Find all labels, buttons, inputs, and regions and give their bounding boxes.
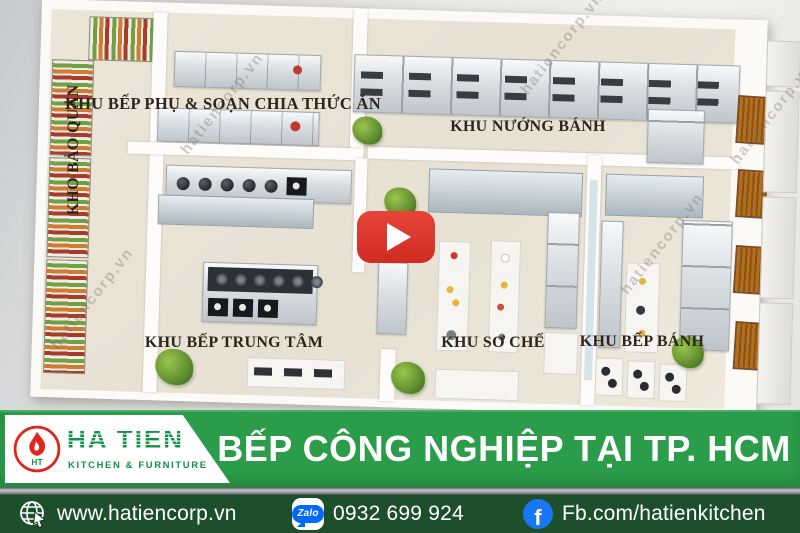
corner-oven-unit (646, 109, 705, 165)
video-thumbnail: hatiencorp.vn hatiencorp.vn hatiencorp.v… (0, 0, 800, 533)
range (233, 299, 254, 318)
phone-text: 0932 699 924 (333, 502, 464, 526)
exhaust-hood (157, 194, 314, 229)
play-icon (387, 223, 411, 251)
facebook-text: Fb.com/hatienkitchen (562, 502, 766, 526)
logo-tagline: KITCHEN & FURNITURE (68, 460, 208, 471)
banner-title: BẾP CÔNG NGHIỆP TẠI TP. HCM (232, 410, 776, 487)
stool (633, 370, 642, 379)
play-button[interactable] (357, 211, 435, 263)
oven-range-row (208, 298, 279, 318)
stool (665, 372, 674, 381)
food-item (636, 306, 645, 315)
counter-item (293, 65, 302, 74)
small-table (658, 363, 687, 402)
steel-cabinet (376, 262, 408, 335)
counter (543, 332, 578, 375)
metal-separator (0, 487, 800, 495)
appliance-row (247, 357, 346, 390)
food-item (497, 303, 504, 310)
food-item (452, 299, 459, 306)
food-item (447, 286, 454, 293)
label-pastry-kitchen: KHU BẾP BÁNH (580, 333, 705, 351)
website-link[interactable]: www.hatiencorp.vn (18, 495, 237, 533)
burner (292, 275, 304, 287)
annex-room (760, 196, 797, 299)
plate (500, 254, 509, 263)
label-central-kitchen: KHU BẾP TRUNG TÂM (145, 334, 323, 352)
steel-cabinet-column (545, 212, 580, 329)
cooktop (207, 267, 313, 294)
burner (216, 273, 228, 285)
food-item (451, 252, 458, 259)
food-item (501, 282, 508, 289)
appliance-vents (254, 367, 338, 377)
burner (220, 178, 233, 191)
floor-plan-area: hatiencorp.vn hatiencorp.vn hatiencorp.v… (0, 0, 800, 410)
stool (608, 379, 617, 388)
counter (434, 369, 519, 401)
burner (235, 274, 247, 286)
small-table (626, 360, 655, 399)
label-baking-area: KHU NƯỚNG BÁNH (450, 118, 606, 136)
island-cooking-block (202, 262, 319, 325)
meat-slicer (290, 121, 300, 131)
burner (273, 275, 285, 287)
stool (601, 367, 610, 376)
burner (264, 179, 277, 192)
logo-monogram: HT (31, 457, 42, 467)
zalo-icon: Zalo (292, 498, 324, 530)
facebook-icon-letter: f (534, 507, 542, 529)
label-preprocessing-area: KHU SƠ CHẾ (441, 334, 544, 352)
contact-bar: www.hatiencorp.vn Zalo 0932 699 924 f Fb… (0, 495, 800, 533)
label-prep-serving-kitchen: KHU BẾP PHỤ & SOẠN CHIA THỨC ĂN (65, 94, 381, 114)
facebook-link[interactable]: f Fb.com/hatienkitchen (523, 495, 766, 533)
small-table (595, 357, 624, 396)
burner (242, 178, 255, 191)
burner (176, 176, 189, 189)
phone-link[interactable]: Zalo 0932 699 924 (292, 495, 464, 533)
oven-vents (360, 88, 732, 106)
facebook-icon: f (523, 499, 553, 529)
cook-line-hood (428, 168, 583, 217)
flame-logo-icon: HT (13, 425, 61, 473)
website-text: www.hatiencorp.vn (57, 502, 237, 526)
zalo-icon-label: Zalo (292, 505, 323, 523)
globe-icon (18, 499, 48, 529)
range (286, 177, 307, 196)
stool (672, 385, 681, 394)
annex-room (756, 302, 793, 405)
burner (254, 274, 266, 286)
fridge-column (679, 220, 733, 351)
burner (198, 177, 211, 190)
stool (640, 382, 649, 391)
logo-brand-name: HA TIEN (67, 424, 184, 455)
shelf-rack (88, 16, 155, 62)
range (208, 298, 229, 317)
range (258, 299, 279, 318)
